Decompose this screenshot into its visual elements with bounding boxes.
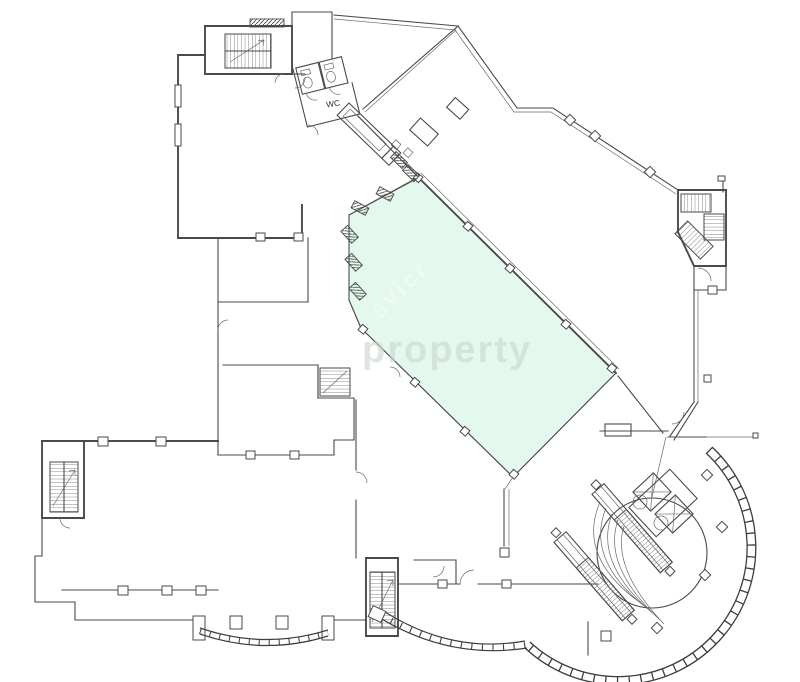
door-swing bbox=[433, 566, 444, 577]
highlighted-unit-area bbox=[349, 177, 616, 477]
stairwell-bottom-left bbox=[42, 441, 84, 518]
bottom-left-hall bbox=[35, 437, 366, 646]
door-swing bbox=[218, 320, 228, 330]
floorplan-drawing: WC bbox=[0, 0, 800, 682]
door-swing bbox=[698, 268, 711, 281]
stairwell-top-left bbox=[205, 12, 332, 74]
elevator-car-icon bbox=[633, 473, 671, 511]
curved-curtain-wall bbox=[368, 447, 756, 682]
highlighted-unit bbox=[341, 173, 619, 479]
door-swing bbox=[275, 74, 284, 83]
stairwell-bottom-middle bbox=[356, 400, 398, 636]
elevator-car-icon bbox=[655, 495, 693, 533]
atrium-escalator-1 bbox=[592, 484, 672, 573]
escalator-ramp-top bbox=[337, 103, 419, 181]
door-swing bbox=[672, 412, 684, 424]
toilet-icon bbox=[301, 69, 311, 76]
left-wing-walls bbox=[175, 55, 354, 459]
small-steps bbox=[320, 368, 350, 396]
door-swing bbox=[356, 472, 367, 483]
wc-toilets: WC bbox=[293, 56, 360, 127]
bay-window bbox=[193, 616, 334, 646]
door-swing bbox=[60, 518, 70, 528]
stairwell-right bbox=[675, 176, 726, 294]
watermark-main: property bbox=[362, 329, 532, 371]
grand-hall-top-right bbox=[334, 15, 678, 194]
wc-label: WC bbox=[325, 98, 340, 110]
right-wing-walls bbox=[600, 290, 758, 497]
floorplan-page: WC bbox=[0, 0, 800, 682]
door-swing bbox=[460, 570, 474, 584]
atrium-escalator-2 bbox=[554, 532, 634, 621]
toilet-icon bbox=[324, 63, 334, 70]
circular-atrium bbox=[551, 469, 707, 624]
stairs-icon bbox=[681, 194, 711, 212]
